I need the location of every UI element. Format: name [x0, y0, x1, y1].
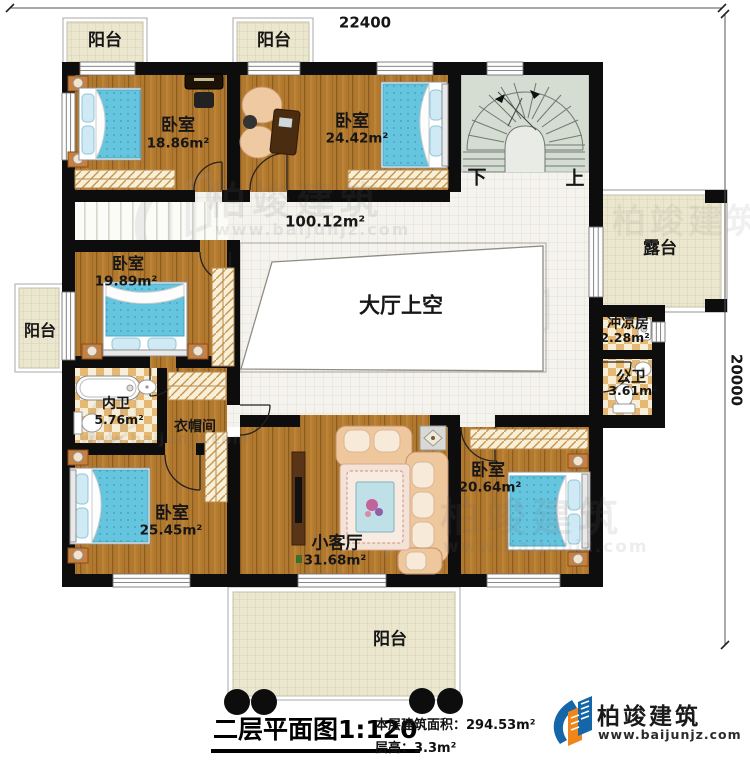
- room-label-bedroom-top-mid: 卧室: [335, 114, 369, 131]
- room-label-bedroom-top-left: 卧室: [161, 118, 195, 135]
- room-label-bedroom-bottom-left: 卧室: [155, 506, 189, 523]
- bath-sink: [138, 380, 156, 394]
- room-area-bedroom-bottom-right: 20.64m²: [459, 481, 522, 495]
- bed-top-mid: [381, 82, 448, 168]
- hall-void-label: 大厅上空: [359, 296, 443, 317]
- room-area-bath: 5.76m²: [94, 414, 143, 427]
- floor-area-line: 本层建筑面积：294.53m²: [375, 714, 535, 733]
- floor-plan: 阳台 阳台 22400 20000 卧室 18.86m² 卧室 24.42m² …: [0, 0, 750, 760]
- room-area-living: 31.68m²: [304, 554, 367, 568]
- room-label-living: 小客厅: [312, 536, 363, 553]
- room-area-bedroom-top-mid: 24.42m²: [326, 132, 389, 146]
- stairs-down-label: 下: [467, 169, 486, 188]
- logo-building-icon: [554, 696, 592, 746]
- floor-height-line: 层高：3.3m²: [375, 737, 456, 756]
- room-label-balcony-left: 阳台: [24, 323, 56, 339]
- logo-url: www.baijunjz.com: [598, 727, 742, 742]
- room-label-bedroom-bottom-right: 卧室: [471, 463, 505, 480]
- watermark-text: 柏竣建筑: [440, 498, 624, 538]
- room-label-terrace: 露台: [643, 241, 677, 258]
- room-label-balcony-top-left: 阳台: [88, 33, 122, 50]
- room-label-balcony-bottom: 阳台: [373, 632, 407, 649]
- watermark-text: 柏竣建筑: [208, 182, 384, 220]
- logo-name: 柏竣建筑: [597, 697, 701, 731]
- watermark-url: www.baijunjz.com: [215, 222, 410, 238]
- room-label-balcony-top-mid: 阳台: [257, 33, 291, 50]
- dimension-height: 20000: [729, 354, 744, 406]
- room-area-toilet: 3.61m²: [608, 385, 657, 398]
- watermark-text: 柏竣建筑: [612, 205, 750, 239]
- dimension-width: 22400: [339, 16, 391, 31]
- room-area-bedroom-top-left: 18.86m²: [147, 137, 210, 151]
- bed-top-left: [68, 76, 141, 167]
- room-area-bedroom-mid-left: 19.89m²: [95, 275, 158, 289]
- room-area-bedroom-bottom-left: 25.45m²: [140, 524, 203, 538]
- stairs-up-label: 上: [565, 170, 584, 189]
- room-label-bath: 内卫: [102, 397, 130, 411]
- watermark-url: www.baijunjz.com: [80, 432, 249, 447]
- room-label-bedroom-mid-left: 卧室: [112, 256, 144, 272]
- room-area-shower: 2.28m²: [600, 332, 649, 345]
- watermark-url: www.baijunjz.com: [443, 539, 649, 556]
